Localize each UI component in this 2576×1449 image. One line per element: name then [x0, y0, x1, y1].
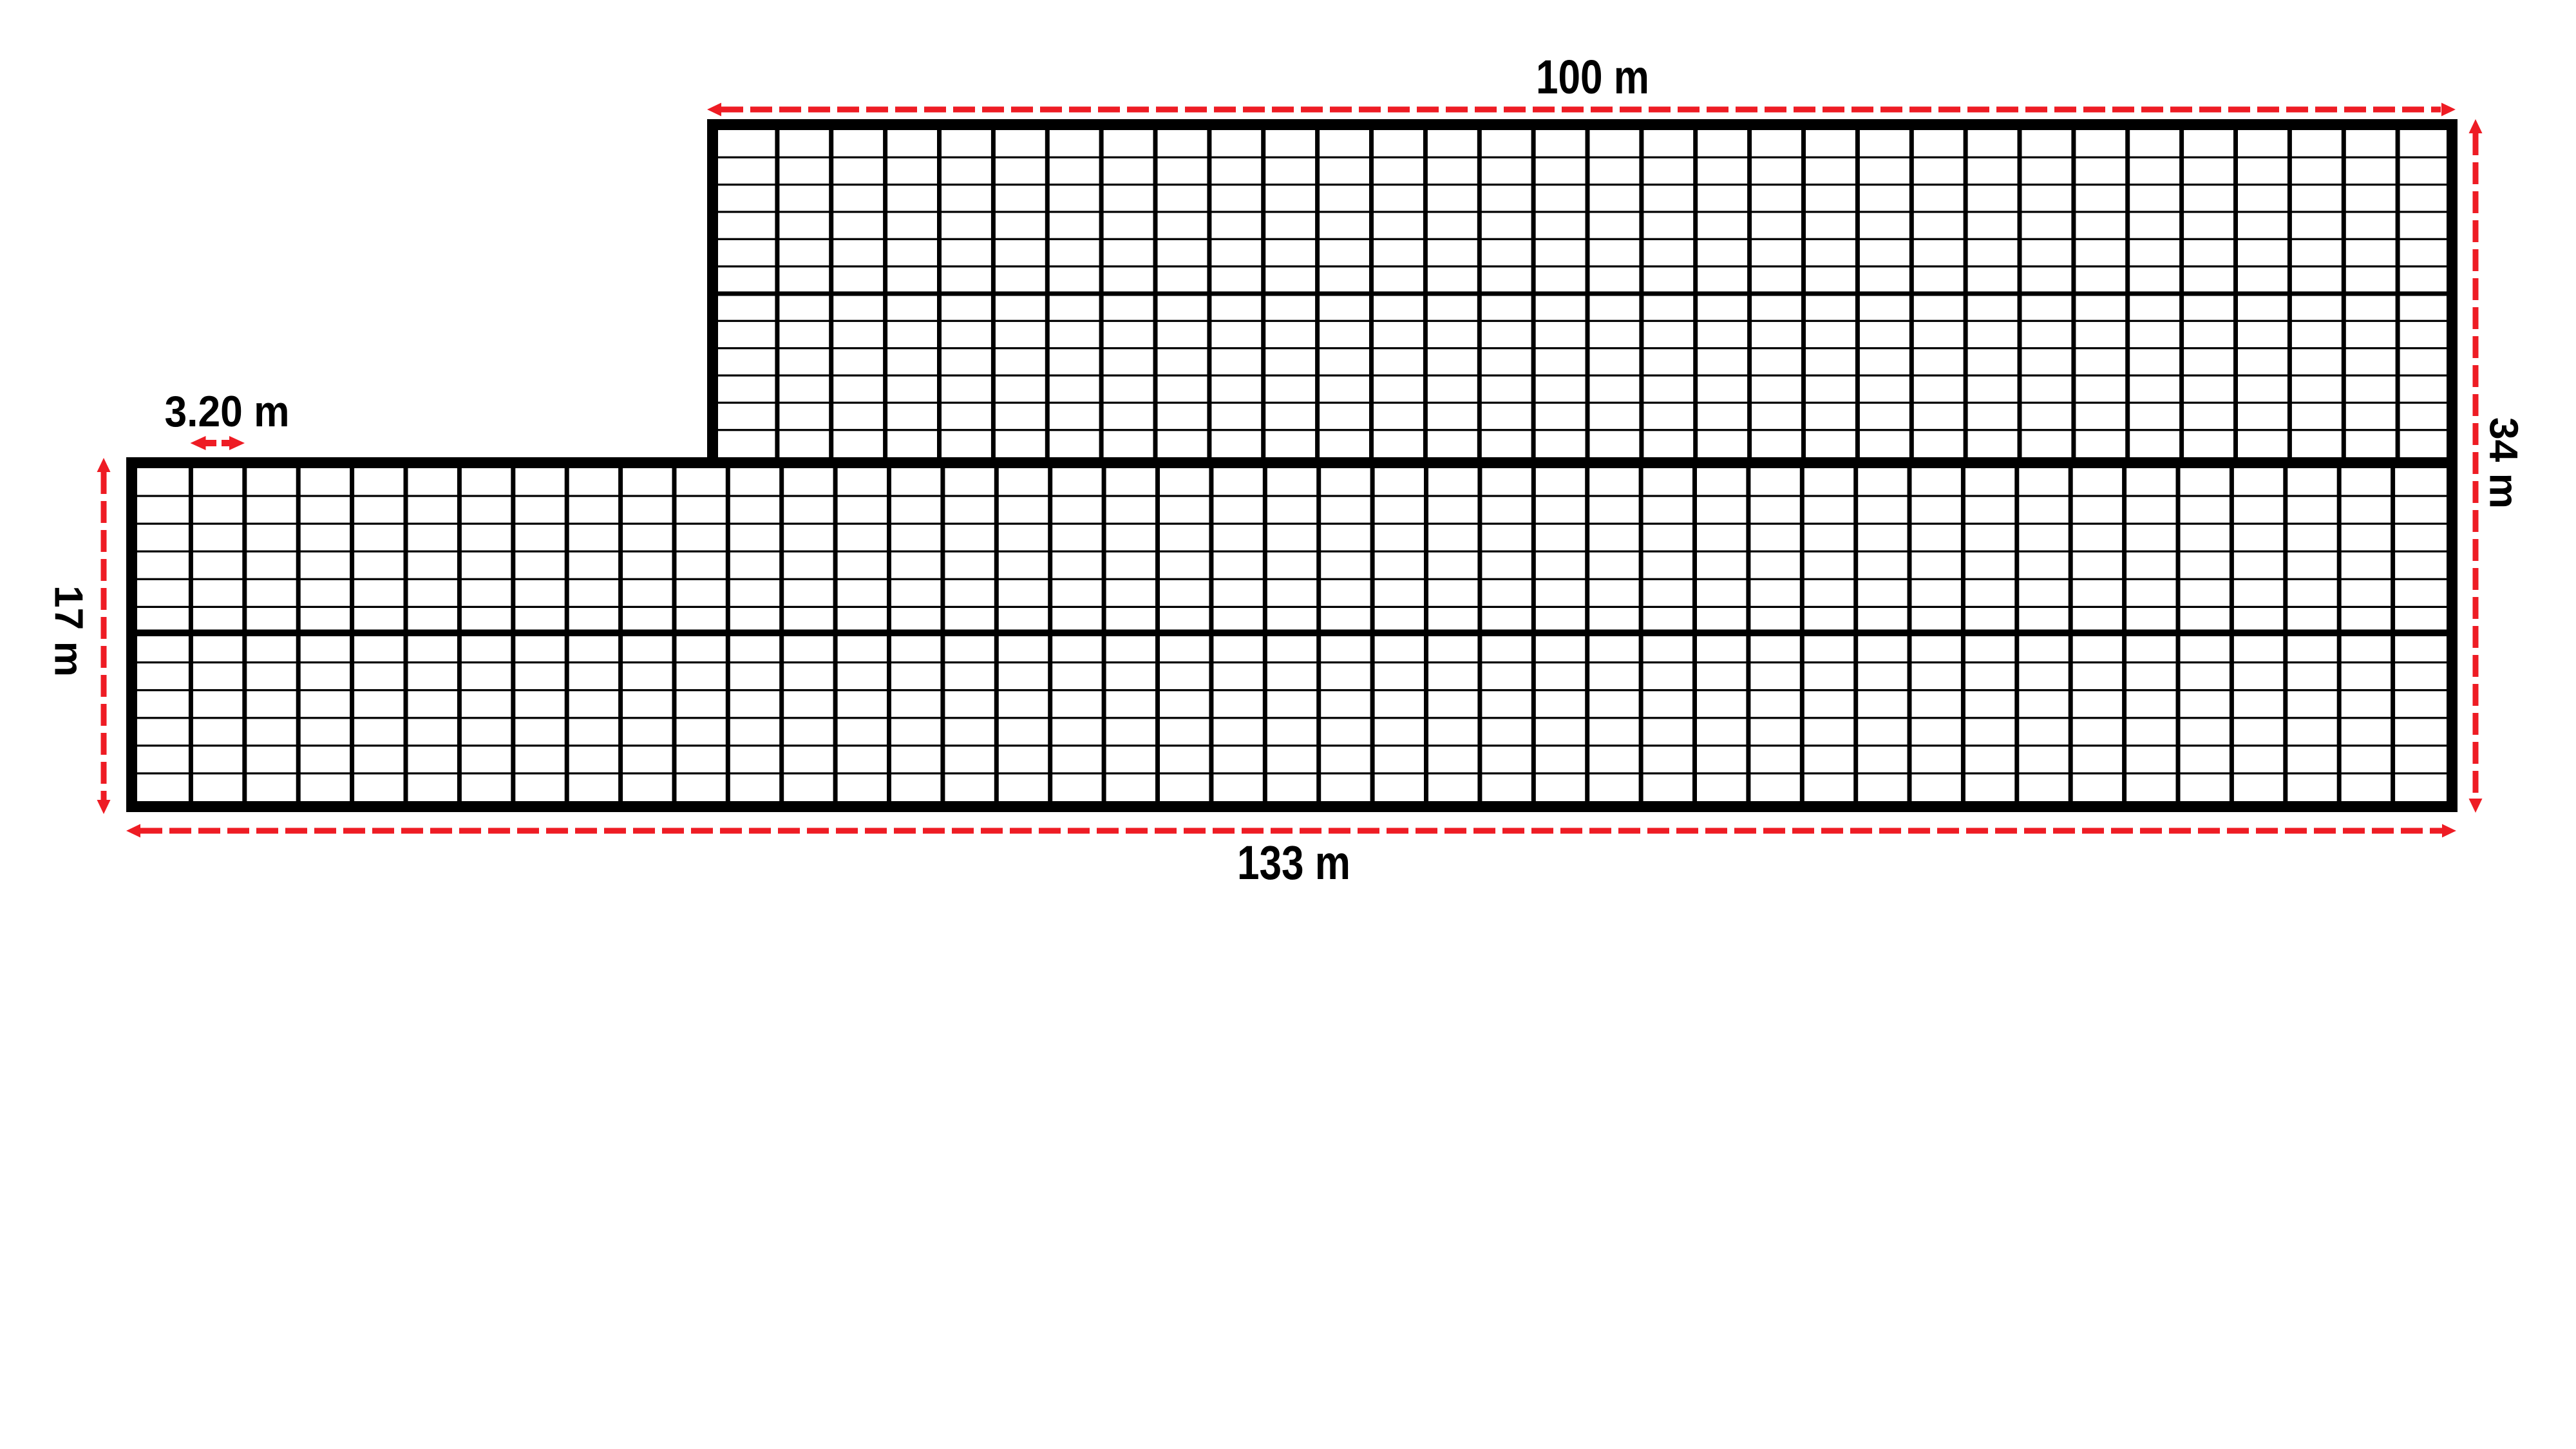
svg-text:17 m: 17 m: [46, 585, 91, 677]
svg-text:34 m: 34 m: [2481, 417, 2526, 509]
svg-text:133 m: 133 m: [1237, 836, 1350, 889]
svg-text:3.20 m: 3.20 m: [165, 387, 290, 436]
svg-text:100 m: 100 m: [1536, 50, 1649, 104]
